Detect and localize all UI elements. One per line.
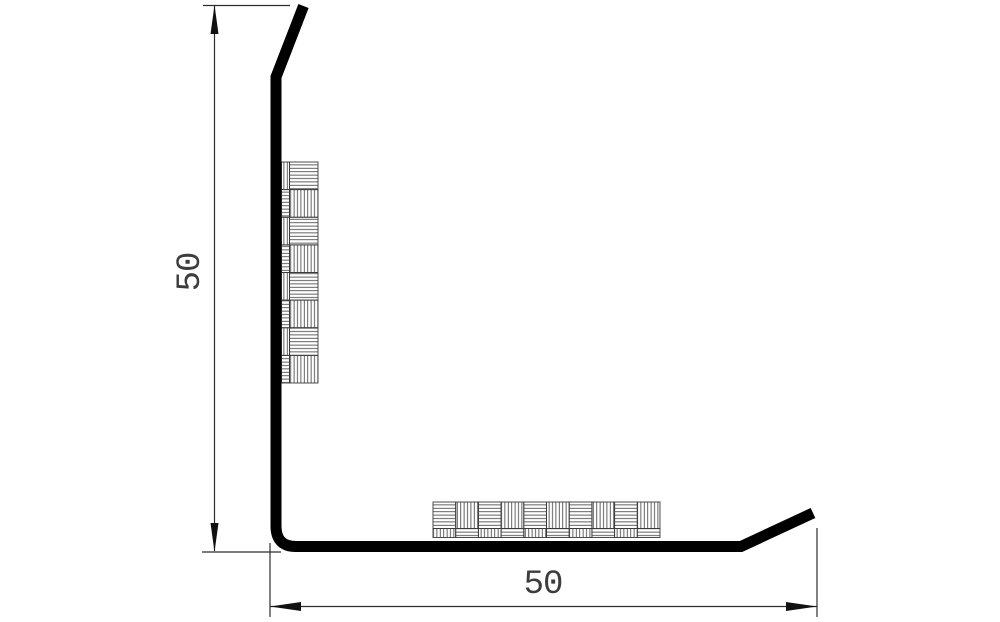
arrowhead-right-icon	[786, 602, 817, 611]
dimension-value-horizontal: 50	[517, 568, 569, 602]
dimension-value-vertical: 50	[174, 241, 208, 303]
arrowhead-left-icon	[270, 602, 301, 611]
profile-outline	[276, 6, 813, 547]
tape-hatch-vertical	[282, 162, 319, 383]
technical-drawing	[0, 0, 1000, 622]
arrowhead-up-icon	[211, 5, 219, 34]
arrowhead-down-icon	[211, 523, 219, 552]
drawing-canvas: 50 50	[0, 0, 1000, 622]
tape-hatch-horizontal	[433, 502, 660, 538]
